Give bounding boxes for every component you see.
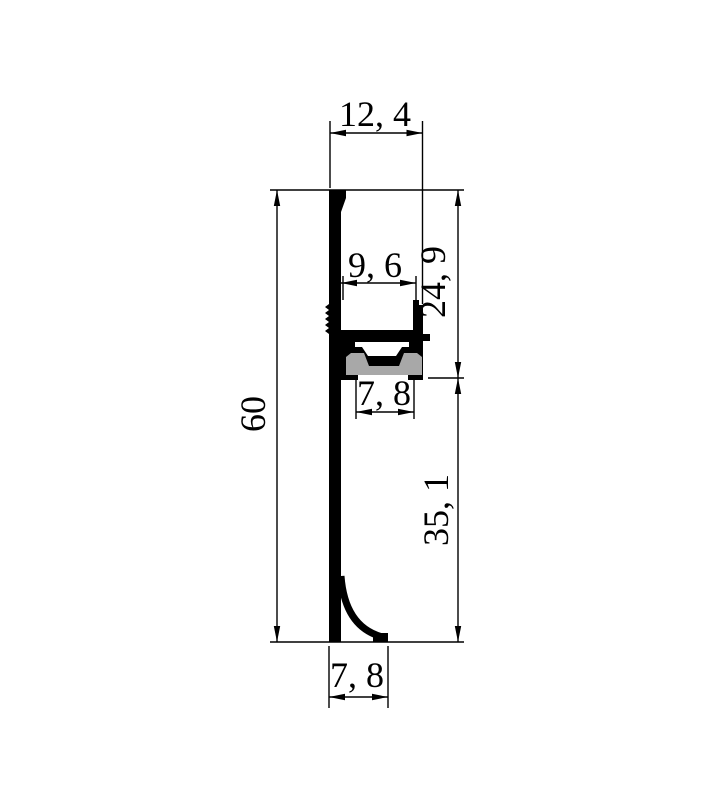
upper-height-label: 24, 9 <box>413 246 453 318</box>
foot-width-label: 7, 8 <box>330 655 384 695</box>
arrowhead <box>274 626 280 642</box>
overall-height-label: 60 <box>233 396 273 432</box>
knurl-texture <box>325 304 329 334</box>
profile-foot-pad <box>373 633 388 642</box>
profile-cross-section-drawing: 12, 4 9, 6 24, 9 7, 8 60 35, 1 7, 8 <box>0 0 721 793</box>
dimensions <box>270 121 464 708</box>
channel-wall-outer-tab <box>423 334 430 341</box>
arrowhead <box>455 190 461 206</box>
dimension-upper-height <box>455 190 461 378</box>
arrowhead <box>274 190 280 206</box>
slot-width-label: 7, 8 <box>357 373 411 413</box>
lower-height-label: 35, 1 <box>416 474 456 546</box>
profile-spine <box>329 190 346 642</box>
overall-width-label: 12, 4 <box>339 94 411 134</box>
arrowhead <box>455 362 461 378</box>
profile-foot-curve <box>341 576 387 638</box>
arrowhead <box>455 378 461 394</box>
dimension-overall-height <box>274 190 280 642</box>
channel-width-label: 9, 6 <box>348 245 402 285</box>
drawing-canvas: 12, 4 9, 6 24, 9 7, 8 60 35, 1 7, 8 <box>0 0 721 793</box>
arrowhead <box>455 626 461 642</box>
